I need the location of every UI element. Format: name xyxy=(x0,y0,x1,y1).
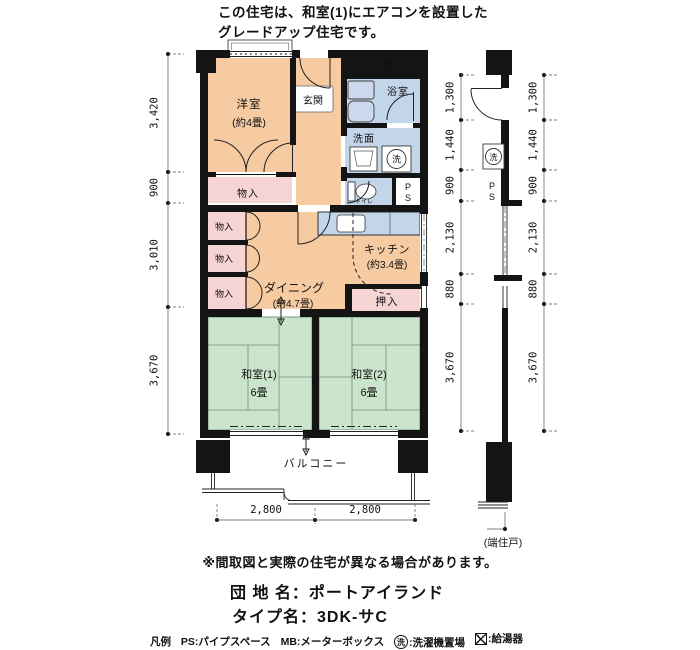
estate-name-value: ポートアイランド xyxy=(309,585,444,602)
kitchen-size: (約3.4畳) xyxy=(367,258,408,271)
dim-right2-5: 3,670 xyxy=(528,352,540,384)
estate-name-label: 団 地 名： xyxy=(230,585,309,602)
japanese-room-1-size: 6畳 xyxy=(250,386,267,399)
pipe-space-label: P xyxy=(489,181,495,191)
disclaimer-note: ※間取図と実際の住宅が異なる場合があります。 xyxy=(158,552,542,571)
dim-right2-1: 1,440 xyxy=(528,129,540,161)
dim-bottom-1: 2,800 xyxy=(349,504,381,516)
dim-right-5: 3,670 xyxy=(445,352,457,384)
estate-name-line: 団 地 名：ポートアイランド xyxy=(230,579,444,603)
dim-left-0: 3,420 xyxy=(149,97,161,129)
type-name-line: タイプ名：3DK-サC xyxy=(232,603,388,627)
entrance-label: 玄関 xyxy=(303,94,323,107)
dim-right2-4: 880 xyxy=(528,280,540,299)
oshiire-label: 押入 xyxy=(376,295,399,308)
pipe-space-label: S xyxy=(405,193,411,203)
type-name-value: 3DK-サC xyxy=(317,609,388,626)
legend-line: 凡例 PS:パイプスペース MB:メーターボックス 洗:洗濯機置場 :給湯器 xyxy=(150,631,530,650)
dim-right-4: 880 xyxy=(445,280,457,299)
balcony-railing xyxy=(202,473,430,504)
toilet-label: トイレ xyxy=(355,200,373,206)
bathtub-icon xyxy=(348,81,374,99)
legend-title: 凡例 xyxy=(150,636,171,648)
washing-machine-label: 洗 xyxy=(490,152,498,162)
storage-label: 物入 xyxy=(215,221,233,232)
balcony-label: バルコニー xyxy=(284,457,349,470)
dim-left-2: 3,010 xyxy=(149,239,161,271)
end-unit-label: (端住戸) xyxy=(484,536,523,549)
pipe-space-label: S xyxy=(489,192,495,202)
storage-label: 物入 xyxy=(215,288,233,299)
legend-laundry-desc: :洗濯機置場 xyxy=(409,635,465,650)
dim-right-1: 1,440 xyxy=(445,129,457,161)
kitchen-counter xyxy=(318,212,420,235)
japanese-room-1-label: 和室(1) xyxy=(241,367,276,381)
type-name-label: タイプ名： xyxy=(232,609,317,626)
toilet-icon xyxy=(348,182,355,201)
western-room-floor xyxy=(208,58,290,172)
dim-right2-3: 2,130 xyxy=(528,222,540,254)
washbasin-icon xyxy=(350,147,377,171)
japanese-room-2-size: 6畳 xyxy=(360,386,377,399)
legend-ps: PS:パイプスペース xyxy=(181,636,271,648)
dim-right-0: 1,300 xyxy=(445,82,457,114)
bathroom-label: 浴室 xyxy=(387,85,409,98)
washing-machine-label: 洗 xyxy=(392,154,401,165)
meter-box-label: MB xyxy=(379,59,395,70)
legend-heater-desc: :給湯器 xyxy=(488,631,523,646)
floorplan-page: この住宅は、和室(1)にエアコンを設置した グレードアップ住宅です。 xyxy=(0,0,700,650)
legend-heater: :給湯器 xyxy=(475,631,523,646)
kitchen-label: キッチン xyxy=(364,243,410,256)
storage-label: 物入 xyxy=(215,253,233,264)
dim-right-3: 2,130 xyxy=(445,222,457,254)
dim-right2-0: 1,300 xyxy=(528,82,540,114)
western-room-label: 洋室 xyxy=(237,97,262,111)
storage-label: 物入 xyxy=(237,187,259,200)
dim-bottom-0: 2,800 xyxy=(250,504,282,516)
dim-left-1: 900 xyxy=(149,178,161,197)
dim-right2-2: 900 xyxy=(528,176,540,195)
japanese-room-2-label: 和室(2) xyxy=(351,367,386,381)
legend-mb: MB:メーターボックス xyxy=(281,636,385,648)
washing-machine-icon: 洗 xyxy=(394,635,408,649)
sink-icon xyxy=(337,215,365,232)
washroom-label: 洗面 xyxy=(353,133,375,145)
bathtub-icon xyxy=(348,101,374,122)
western-room-size: (約4畳) xyxy=(232,116,266,129)
pipe-space-label: P xyxy=(405,182,411,192)
water-heater-icon xyxy=(475,633,487,645)
dim-left-3: 3,670 xyxy=(149,355,161,387)
legend-laundry: 洗:洗濯機置場 xyxy=(394,635,465,650)
adjacent-door-arc xyxy=(471,89,502,121)
dining-size: (約4.7畳) xyxy=(273,297,314,310)
dining-label: ダイニング xyxy=(264,280,324,295)
dim-right-2: 900 xyxy=(445,176,457,195)
hallway-floor xyxy=(296,58,341,205)
adjacent-unit-outline xyxy=(471,50,522,531)
opening-arrow xyxy=(303,433,309,455)
